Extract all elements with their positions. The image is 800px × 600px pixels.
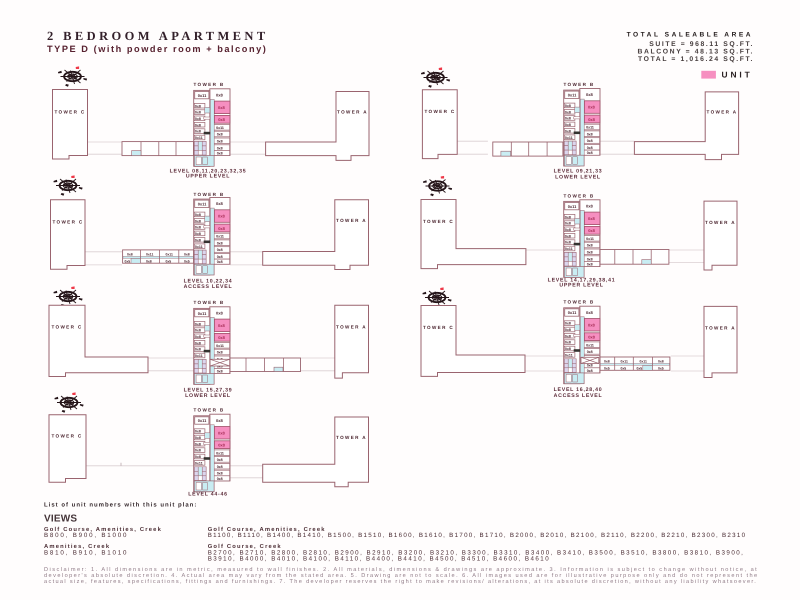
svg-text:TOWER A: TOWER A <box>707 110 738 115</box>
svg-text:BALCONY = 48.13 SQ.FT.: BALCONY = 48.13 SQ.FT. <box>638 49 754 56</box>
svg-text:0x11: 0x11 <box>166 252 173 256</box>
svg-text:TOTAL = 1,016.24 SQ.FT.: TOTAL = 1,016.24 SQ.FT. <box>638 56 754 63</box>
svg-text:TOWER B: TOWER B <box>563 300 594 305</box>
svg-text:TOWER C: TOWER C <box>423 325 454 330</box>
svg-text:VIEWS: VIEWS <box>44 513 77 524</box>
svg-text:TOWER C: TOWER C <box>51 325 82 330</box>
svg-text:TOWER A: TOWER A <box>336 218 367 223</box>
svg-text:Disclaimer: 1. All dimensions: Disclaimer: 1. All dimensions are in met… <box>44 566 758 573</box>
svg-text:UNIT: UNIT <box>722 70 753 80</box>
svg-text:TOWER C: TOWER C <box>51 434 82 439</box>
svg-text:0x5: 0x5 <box>184 259 190 263</box>
svg-text:B810, B910, B1010: B810, B910, B1010 <box>44 549 128 556</box>
svg-text:ACCESS LEVEL: ACCESS LEVEL <box>184 284 233 290</box>
svg-text:2 BEDROOM APARTMENT: 2 BEDROOM APARTMENT <box>47 29 269 43</box>
svg-text:0x11: 0x11 <box>640 359 647 363</box>
svg-text:UPPER LEVEL: UPPER LEVEL <box>559 283 603 289</box>
svg-text:0x8: 0x8 <box>146 259 152 263</box>
svg-text:TOWER B: TOWER B <box>563 194 594 199</box>
svg-text:TOWER C: TOWER C <box>52 220 83 225</box>
svg-text:B800, B900, B1000: B800, B900, B1000 <box>44 532 128 539</box>
svg-text:LEVEL 44-46: LEVEL 44-46 <box>188 492 228 498</box>
svg-text:0x5: 0x5 <box>166 259 172 263</box>
svg-text:TOWER B: TOWER B <box>193 192 224 197</box>
svg-text:TOTAL SALEABLE AREA: TOTAL SALEABLE AREA <box>627 32 753 39</box>
svg-text:ACCESS LEVEL: ACCESS LEVEL <box>554 393 603 399</box>
svg-text:0x5: 0x5 <box>621 366 627 370</box>
svg-text:B1100, B1110, B1400, B1410, B1: B1100, B1110, B1400, B1410, B1500, B1510… <box>208 532 747 539</box>
svg-text:TYPE D (with powder room + bal: TYPE D (with powder room + balcony) <box>47 44 267 54</box>
svg-text:UPPER LEVEL: UPPER LEVEL <box>186 174 230 180</box>
svg-text:TOWER B: TOWER B <box>193 82 224 87</box>
svg-text:List of unit numbers with this: List of unit numbers with this unit plan… <box>44 501 197 508</box>
svg-text:B3910, B4000, B4010, B4100, B4: B3910, B4000, B4010, B4100, B4110, B4400… <box>208 556 550 563</box>
svg-text:TOWER B: TOWER B <box>193 408 224 413</box>
svg-text:TOWER A: TOWER A <box>337 110 368 115</box>
svg-text:TOWER B: TOWER B <box>193 300 224 305</box>
svg-text:TOWER A: TOWER A <box>705 326 736 331</box>
svg-text:0x8: 0x8 <box>184 252 190 256</box>
svg-text:TOWER A: TOWER A <box>336 325 367 330</box>
svg-text:LEVEL 16,28,40: LEVEL 16,28,40 <box>554 387 603 393</box>
svg-text:developer's absolute discretio: developer's absolute discretion. 4. Actu… <box>44 572 759 579</box>
svg-text:0x5: 0x5 <box>604 366 610 370</box>
svg-text:TOWER B: TOWER B <box>563 82 594 87</box>
svg-text:SUITE = 968.11 SQ.FT.: SUITE = 968.11 SQ.FT. <box>649 41 754 48</box>
svg-text:TOWER C: TOWER C <box>424 109 455 114</box>
svg-text:0x8: 0x8 <box>604 359 610 363</box>
svg-text:TOWER C: TOWER C <box>54 110 85 115</box>
svg-text:0x8: 0x8 <box>658 359 664 363</box>
svg-text:0x11: 0x11 <box>621 359 628 363</box>
svg-text:0x5: 0x5 <box>658 366 664 370</box>
svg-text:LOWER LEVEL: LOWER LEVEL <box>185 393 231 399</box>
svg-text:TOWER C: TOWER C <box>423 219 454 224</box>
svg-text:0x5: 0x5 <box>637 366 643 370</box>
svg-text:TOWER A: TOWER A <box>336 435 367 440</box>
svg-text:actual size, features, specifi: actual size, features, specifications, f… <box>44 578 757 585</box>
svg-text:0x5: 0x5 <box>125 259 131 263</box>
svg-text:LOWER LEVEL: LOWER LEVEL <box>555 175 601 181</box>
svg-text:TOWER A: TOWER A <box>705 220 736 225</box>
svg-text:0x11: 0x11 <box>146 252 153 256</box>
svg-text:0x8: 0x8 <box>127 252 133 256</box>
